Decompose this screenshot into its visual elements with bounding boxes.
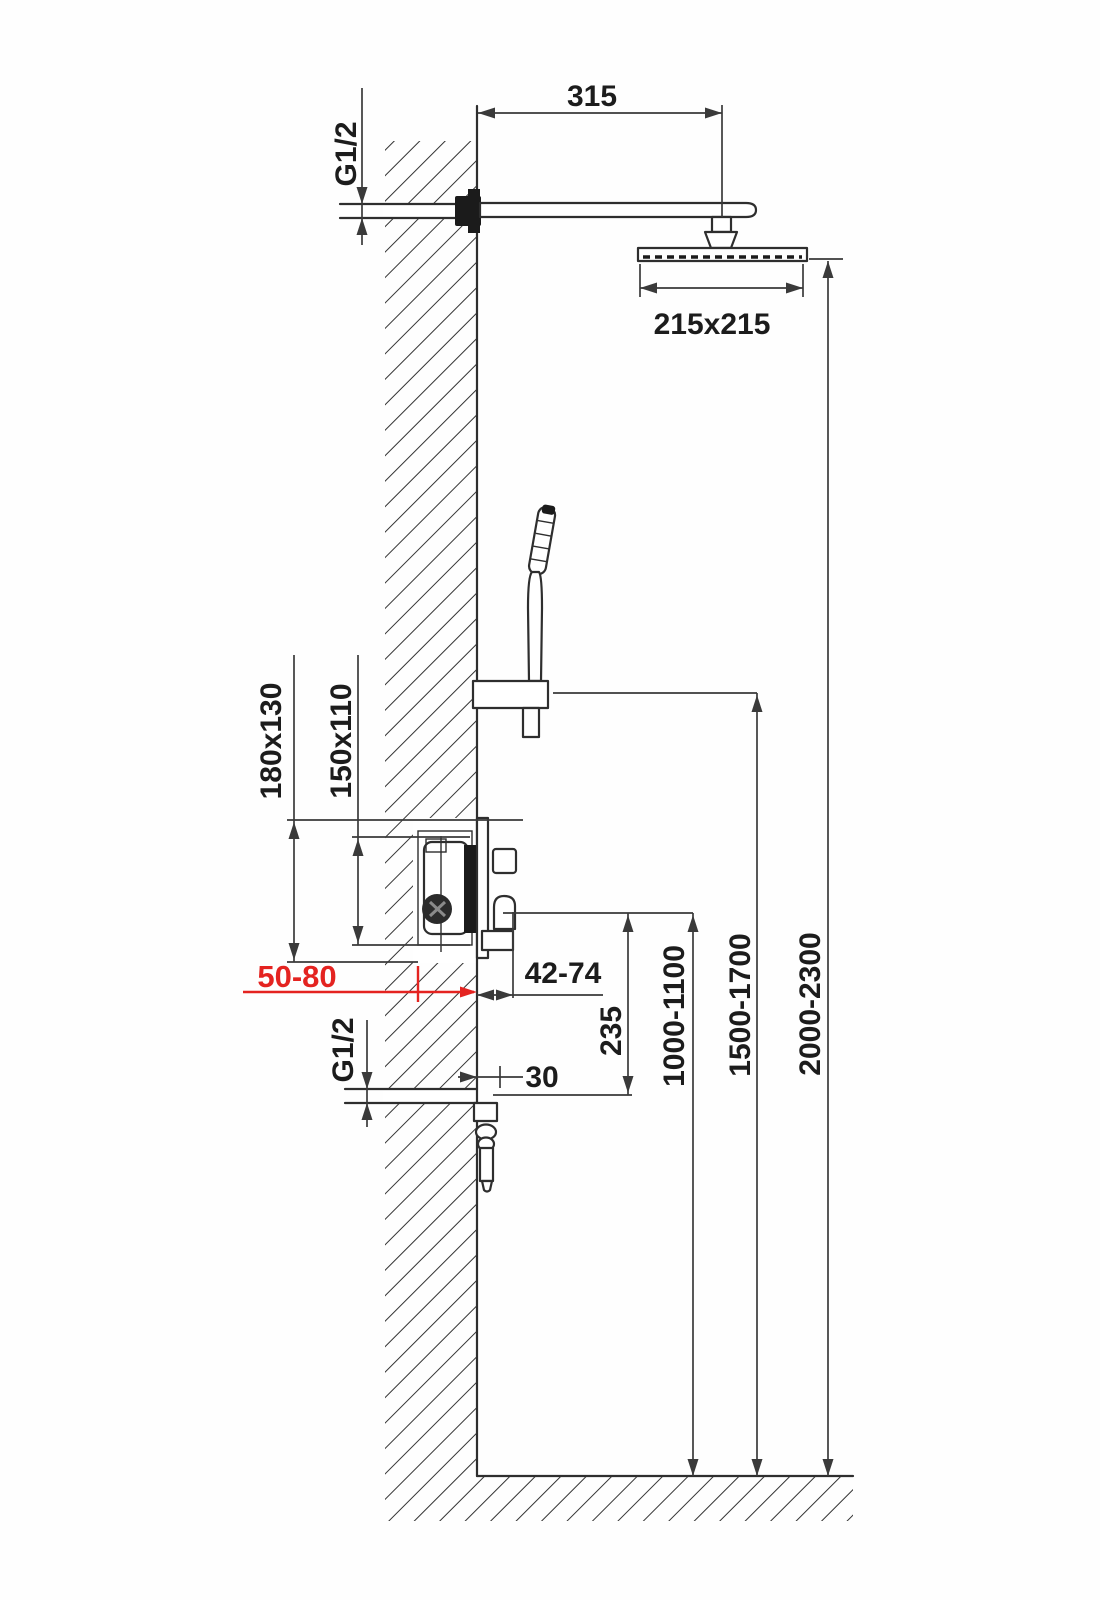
technical-drawing-page: 315 215x215 G1/2 180x130 150x110 50-80 4… [0,0,1100,1600]
shower-installation-diagram: 315 215x215 G1/2 180x130 150x110 50-80 4… [0,0,1100,1600]
label-thread-top: G1/2 [330,121,363,186]
joint-flange [705,232,737,248]
arm-wall-fitting [455,196,481,226]
wall-section [383,106,853,1521]
trim-base [482,931,513,950]
outlet-elbow [474,1103,497,1121]
overhead-shower-head [638,248,807,261]
label-thread-bottom: G1/2 [327,1017,360,1082]
label-showerhead-height: 2000-2300 [794,932,827,1075]
label-outlet-offset: 235 [595,1006,628,1056]
outlet-tip [482,1181,492,1192]
dim-showerhead-height [809,259,843,1476]
label-spout-projection: 30 [525,1061,558,1094]
label-rough-opening: 180x130 [255,683,288,800]
dim-arm-reach [478,105,722,217]
arm-flange-bottom [468,225,480,233]
label-mixer-height: 1000-1100 [658,945,691,1087]
label-lever-clearance: 42-74 [525,957,602,990]
label-handshower-height: 1500-1700 [724,933,757,1076]
hand-shower-head [528,504,557,576]
wall-bracket [473,681,548,708]
arm-tube [480,203,756,217]
label-head-size: 215x215 [654,308,771,341]
hand-shower-handle [528,572,542,681]
head-plate [638,248,807,261]
shower-arm [455,189,756,248]
floor-hatch [477,1476,853,1521]
dim-head-size [640,264,803,297]
hose-connector [523,708,539,737]
label-embed-depth: 50-80 [257,959,336,994]
pipe-clear-bottom [383,1088,479,1104]
outlet-nipple [480,1148,493,1181]
label-concealed-box: 150x110 [325,683,358,798]
hand-shower [473,504,557,737]
ball-joint [712,217,731,232]
dim-thread-bottom [362,1020,373,1127]
arm-flange-top [468,189,480,197]
label-arm-reach: 315 [567,80,617,113]
diverter-button [493,849,516,873]
